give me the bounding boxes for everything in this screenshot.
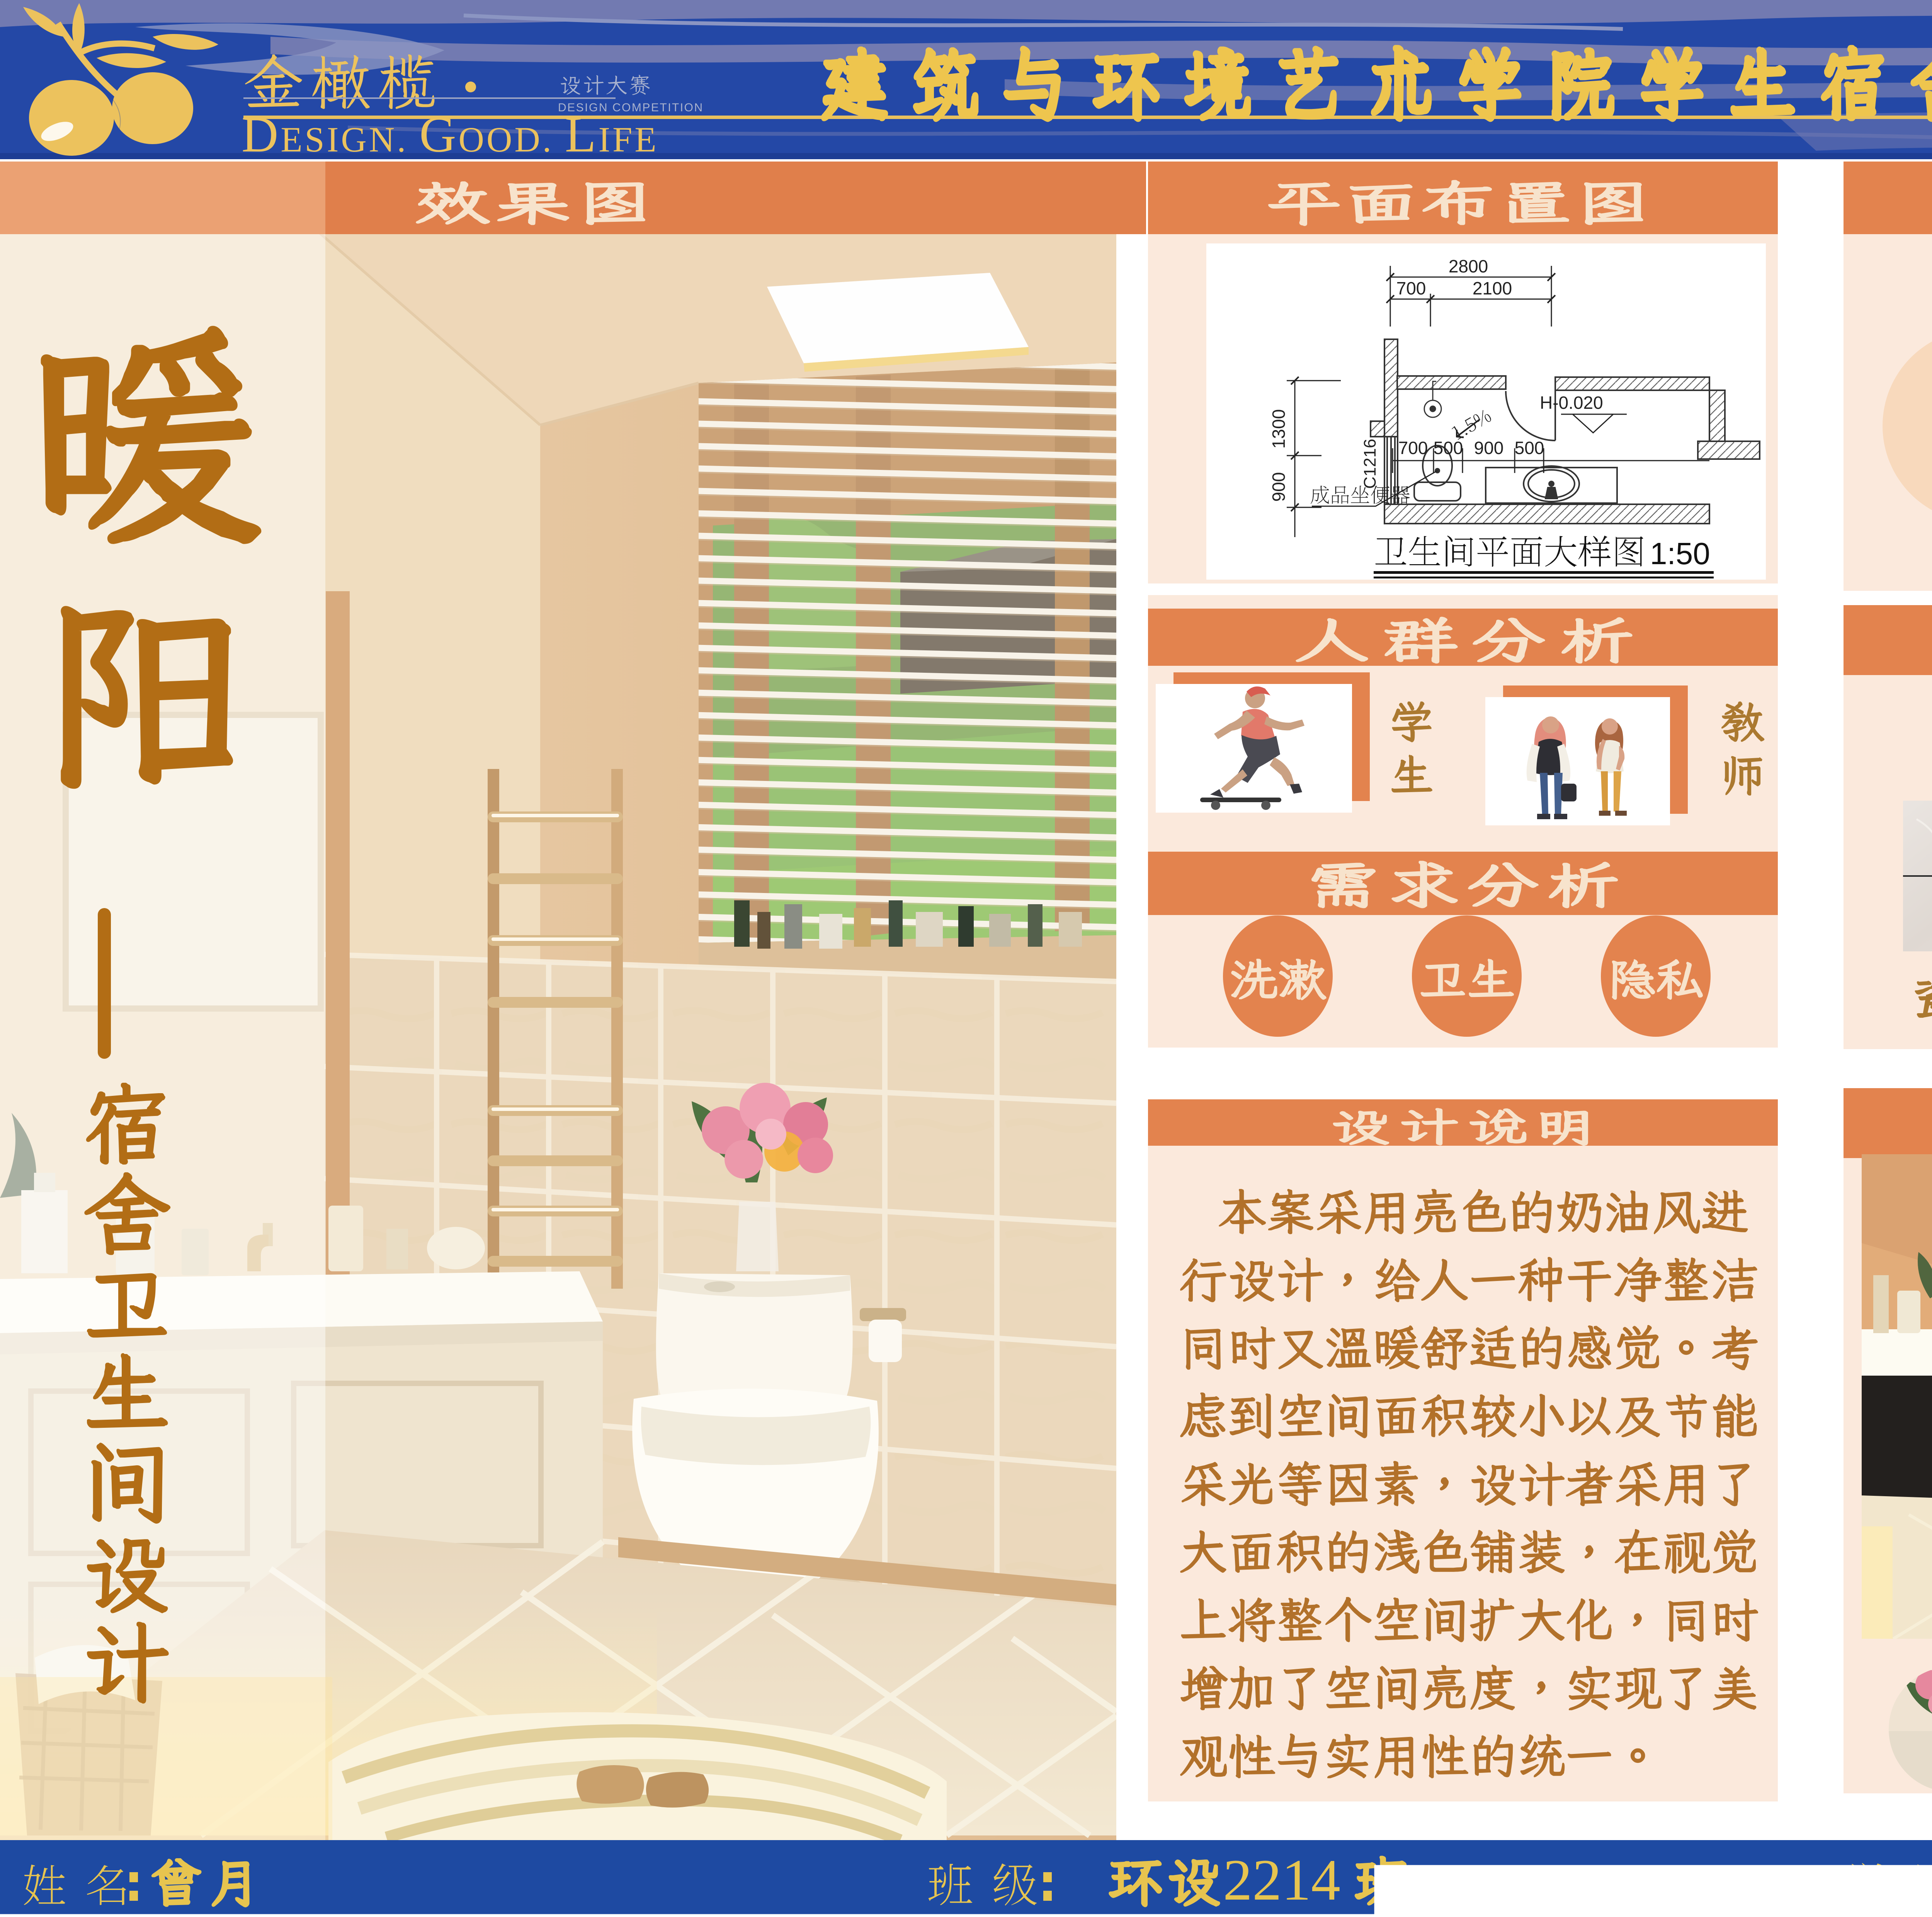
svg-text:2100: 2100 [1473,278,1512,298]
svg-text:1300: 1300 [1269,409,1289,449]
svg-text:C1216: C1216 [1361,439,1379,489]
svg-text:H-0.020: H-0.020 [1540,393,1603,413]
svg-text:900: 900 [1269,472,1289,502]
svg-text:500: 500 [1515,438,1544,458]
svg-text:500: 500 [1434,438,1463,458]
svg-text:700: 700 [1398,438,1428,458]
svg-text:2214: 2214 [1223,1847,1340,1912]
svg-text:700: 700 [1396,278,1426,298]
svg-text:900: 900 [1474,438,1504,458]
svg-text:2800: 2800 [1449,256,1488,276]
svg-text:1:50: 1:50 [1650,536,1710,571]
